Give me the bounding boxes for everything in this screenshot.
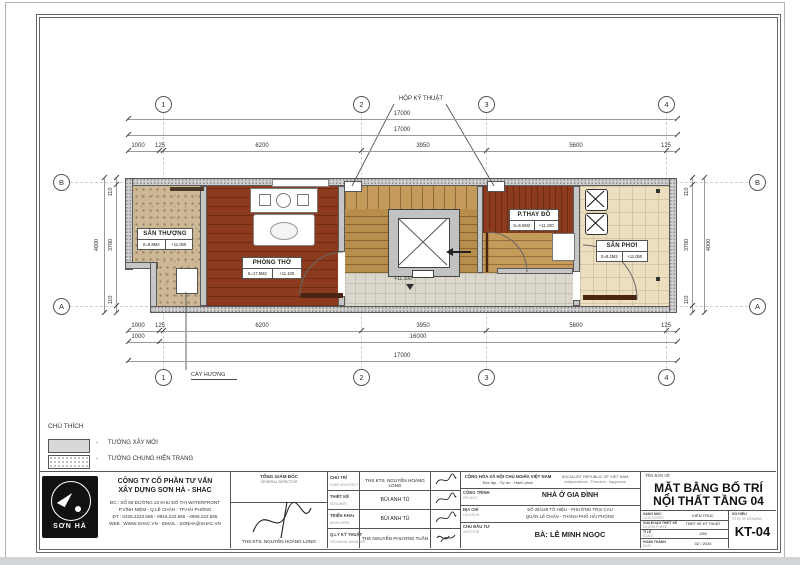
republic-en-1: SOCIALIST REPUBLIC OF VIET NAM bbox=[552, 474, 638, 479]
project-label: CÔNG TRÌNH bbox=[463, 490, 490, 495]
company-name-2: XÂY DỰNG SƠN HÀ - SHAC bbox=[100, 487, 230, 494]
candle-right-icon bbox=[297, 194, 309, 206]
grid-bubble-1-top: 1 bbox=[155, 96, 172, 113]
room-area: S=6.8M2 bbox=[138, 240, 165, 249]
project-value: NHÀ Ở GIA ĐÌNH bbox=[500, 492, 640, 499]
tb-hline bbox=[460, 488, 640, 489]
wall-santhuong-phongtho bbox=[200, 186, 207, 306]
tb-hline bbox=[327, 528, 460, 529]
incense-altar-box bbox=[176, 268, 198, 294]
dim-total: 17000 bbox=[352, 126, 452, 134]
dim-side-seg: 3780 bbox=[107, 230, 115, 260]
legend-swatch-existing-wall bbox=[48, 455, 90, 469]
incense-bowl-icon bbox=[276, 193, 291, 208]
meta-label-en: DESIGN PHASE bbox=[643, 525, 667, 529]
san-thuong-floor bbox=[133, 186, 203, 264]
desk-strip bbox=[0, 557, 800, 565]
director-signature bbox=[245, 498, 315, 540]
company-name-1: CÔNG TY CỔ PHẦN TƯ VẤN bbox=[100, 478, 230, 485]
elevator-car bbox=[398, 218, 450, 268]
elevator-door bbox=[412, 270, 434, 278]
role-label-en: DESIGNER bbox=[330, 502, 347, 506]
drawing-sheet: SÂN THƯỢNG S=6.8M2+11.050 PHÒNG THỜ S=17… bbox=[0, 0, 800, 565]
dim-seg: 16000 bbox=[368, 333, 468, 341]
drawing-title-2: NỘI THẤT TẦNG 04 bbox=[641, 495, 776, 508]
dim-line bbox=[128, 342, 677, 343]
wall-bottom bbox=[150, 306, 677, 313]
meta-value: 1/50 bbox=[680, 531, 726, 536]
logo-dot-icon bbox=[75, 506, 81, 512]
role-label: TRIỂN KHAI bbox=[330, 513, 354, 518]
meta-label-en: SCALE bbox=[643, 534, 653, 538]
role-name: THS.KTS. NGUYỄN HOÀNG LONG bbox=[360, 478, 430, 488]
grid-bubble-2-bottom: 2 bbox=[353, 369, 370, 386]
room-area: S=8.2M2 bbox=[597, 252, 622, 261]
location-label-en: LOCATION bbox=[463, 513, 479, 517]
altar-table bbox=[250, 188, 318, 213]
dim-line bbox=[128, 331, 677, 332]
tb-hline bbox=[327, 509, 460, 510]
tb-hline bbox=[640, 529, 728, 530]
role-label-en: CHIEF ARCHITECT bbox=[330, 483, 359, 487]
tb-hline bbox=[327, 490, 460, 491]
corridor-floor bbox=[345, 273, 573, 306]
candle-left-icon bbox=[259, 194, 271, 206]
legend-separator: - bbox=[96, 456, 98, 462]
corridor-level: +11.100 bbox=[394, 276, 412, 282]
stair-arrow-tail bbox=[453, 251, 471, 253]
company-address-2: P.VĨNH NIỆM - Q.LÊ CHÂN - TP.HẢI PHÒNG bbox=[100, 507, 230, 512]
role-signature-1 bbox=[433, 473, 458, 488]
dim-line bbox=[104, 178, 105, 313]
role-signature-3 bbox=[433, 511, 458, 526]
terrace-railing bbox=[170, 187, 204, 191]
room-name: P.THAY ĐỒ bbox=[510, 210, 558, 220]
role-label: CHỦ TRÌ bbox=[330, 475, 347, 480]
meta-label-en: CATEGORIES bbox=[643, 516, 664, 520]
company-address-1: ĐC : SỐ 55 ĐƯỜNG 22 KHU ĐÔ THỊ WATERFRON… bbox=[100, 500, 230, 505]
room-label-phong-tho: PHÒNG THỜ S=17.5M2+11.100 bbox=[242, 257, 302, 279]
meta-value: 02 / 2024 bbox=[680, 541, 726, 546]
legend-title: CHÚ THÍCH bbox=[48, 423, 84, 430]
wall-stair-pthaydo bbox=[477, 186, 483, 273]
director-name: THS.KTS. NGUYỄN HOÀNG LONG bbox=[231, 539, 327, 544]
company-web: WEB : WWW.SHAC.VN - EMAIL : SONHA@SHAC.V… bbox=[100, 521, 230, 526]
top-wall-window bbox=[272, 179, 329, 187]
grid-bubble-4-top: 4 bbox=[658, 96, 675, 113]
room-label-san-thuong: SÂN THƯỢNG S=6.8M2+11.050 bbox=[137, 228, 193, 250]
investor-value: BÀ: LÊ MINH NGỌC bbox=[500, 530, 640, 539]
director-title-vn: TỔNG GIÁM ĐỐC bbox=[231, 474, 327, 479]
dim-seg: 3950 bbox=[373, 142, 473, 150]
location-line-2: QUẬN LÊ CHÂN - THÀNH PHỐ HẢI PHÒNG bbox=[500, 514, 640, 519]
dim-seg: 3950 bbox=[373, 322, 473, 330]
role-name: BÙI ANH TÚ bbox=[360, 497, 430, 503]
role-name: BÙI ANH TÚ bbox=[360, 516, 430, 522]
dim-side-total: 4000 bbox=[93, 230, 101, 260]
titleblock-top-border bbox=[39, 471, 776, 472]
project-label-en: PROJECT bbox=[463, 496, 478, 500]
tb-hline bbox=[460, 505, 640, 506]
stair-upper-flight bbox=[345, 186, 477, 209]
grid-bubble-1-bottom: 1 bbox=[155, 369, 172, 386]
dim-side-seg: 3780 bbox=[683, 230, 691, 260]
grid-bubble-3-top: 3 bbox=[478, 96, 495, 113]
dim-total: 17000 bbox=[352, 110, 452, 118]
wall-pthaydo-corridor bbox=[497, 268, 573, 274]
wall-left bbox=[125, 178, 133, 270]
dim-line bbox=[692, 178, 693, 313]
legend-swatch-new-wall bbox=[48, 439, 90, 453]
room-label-san-phoi: SÂN PHƠI S=8.2M2+11.050 bbox=[596, 240, 648, 262]
meta-label-en: DATE bbox=[643, 544, 651, 548]
room-level: +11.050 bbox=[622, 252, 648, 261]
republic-vn-1: CỘNG HÒA XÃ HỘI CHỦ NGHĨA VIỆT NAM bbox=[464, 474, 552, 479]
role-signature-4 bbox=[433, 530, 458, 545]
grid-bubble-A-left: A bbox=[53, 298, 70, 315]
legend-item-new-wall: TƯỜNG XÂY MỚI bbox=[108, 440, 158, 446]
company-phone: ĐT : 0225.2222.555 - 0916.222.555 - 0906… bbox=[100, 514, 230, 519]
drain-1 bbox=[656, 189, 660, 193]
dim-total: 17000 bbox=[352, 352, 452, 360]
wall-right bbox=[669, 178, 677, 313]
room-area: S=17.5M2 bbox=[243, 269, 272, 278]
tech-box-1 bbox=[344, 181, 362, 192]
prayer-mat bbox=[253, 214, 315, 246]
meta-value: KIẾN TRÚC bbox=[680, 513, 726, 518]
drain-2 bbox=[656, 277, 660, 281]
room-level: +11.050 bbox=[165, 240, 193, 249]
tb-hline bbox=[640, 538, 728, 539]
dim-side-total: 4000 bbox=[705, 230, 713, 260]
grid-bubble-B-right: B bbox=[749, 174, 766, 191]
callout-tech-box: HỘP KỸ THUẬT bbox=[390, 95, 452, 103]
location-label: ĐỊA CHỈ bbox=[463, 507, 478, 512]
dim-line bbox=[128, 361, 677, 362]
company-logo: SƠN HÀ bbox=[42, 476, 98, 538]
grid-bubble-2-top: 2 bbox=[353, 96, 370, 113]
tech-box-2 bbox=[487, 181, 505, 192]
dim-line bbox=[128, 135, 677, 136]
republic-en-2: Independence - Freedom - happiness bbox=[552, 480, 638, 484]
vent-shaft-1 bbox=[585, 189, 608, 211]
wall-phongtho-stair-upper bbox=[338, 186, 345, 252]
legend-separator: - bbox=[96, 440, 98, 446]
location-line-1: SỐ 26/125 TÔ HIỆU - PHƯỜNG TRẠI CAU bbox=[500, 507, 640, 512]
callout-incense: CÂY HƯƠNG bbox=[191, 371, 237, 380]
stair-arrow-icon bbox=[446, 248, 453, 256]
role-label: Q.LÝ KỸ THUẬT bbox=[330, 532, 362, 537]
wall-top bbox=[125, 178, 677, 186]
room-name: PHÒNG THỜ bbox=[243, 258, 301, 268]
stair-left-flight bbox=[345, 209, 388, 273]
tb-vline bbox=[460, 471, 461, 548]
grid-bubble-A-right: A bbox=[749, 298, 766, 315]
room-area: S=6.0M2 bbox=[510, 221, 534, 230]
grid-bubble-B-left: B bbox=[53, 174, 70, 191]
stair-right-flight bbox=[458, 209, 477, 273]
wall-sanphoi-west-stub bbox=[573, 300, 580, 306]
dim-line bbox=[116, 178, 117, 313]
room-name: SÂN THƯỢNG bbox=[138, 229, 192, 239]
vent-shaft-2 bbox=[585, 213, 608, 235]
room-name: SÂN PHƠI bbox=[597, 241, 647, 251]
dim-line bbox=[128, 119, 677, 120]
role-label-en: DEVELOPED bbox=[330, 521, 350, 525]
republic-vn-2: Độc lập - Tự do - Hạnh phúc bbox=[464, 480, 552, 485]
logo-text: SƠN HÀ bbox=[42, 523, 98, 530]
sheet-number: KT-04 bbox=[729, 524, 776, 539]
wall-phongtho-stair-stub bbox=[338, 296, 345, 306]
cabinet bbox=[552, 233, 575, 261]
role-signature-2 bbox=[433, 492, 458, 507]
room-level: +11.100 bbox=[534, 221, 559, 230]
sheet-number-label-en: TITLE OF DRAWING bbox=[732, 517, 762, 521]
tb-hline bbox=[640, 510, 776, 511]
legend-item-existing-wall: TƯỜNG CHUNG HIỆN TRẠNG bbox=[108, 456, 193, 462]
meta-value: THIẾT KẾ KỸ THUẬT bbox=[680, 522, 726, 526]
drawing-name-label: TÊN BẢN VẼ bbox=[645, 473, 670, 478]
room-label-p-thay-do: P.THAY ĐỒ S=6.0M2+11.100 bbox=[509, 209, 559, 231]
dim-seg: 5600 bbox=[526, 322, 626, 330]
investor-label-en: INVESTOR bbox=[463, 530, 479, 534]
role-name: THS NGUYỄN PHƯƠNG TUẤN bbox=[360, 536, 430, 541]
room-level: +11.100 bbox=[272, 269, 302, 278]
dim-seg: 5600 bbox=[526, 142, 626, 150]
grid-bubble-4-bottom: 4 bbox=[658, 369, 675, 386]
grid-bubble-3-bottom: 3 bbox=[478, 369, 495, 386]
tb-hline bbox=[460, 522, 640, 523]
prayer-cushion bbox=[270, 222, 298, 240]
dim-seg: 6200 bbox=[212, 142, 312, 150]
dim-seg: 6200 bbox=[212, 322, 312, 330]
director-title-en: GENERAL DIRECTOR bbox=[231, 480, 327, 484]
investor-label: CHỦ ĐẦU TƯ bbox=[463, 524, 490, 529]
role-label: THIẾT KẾ bbox=[330, 494, 349, 499]
dim-line bbox=[128, 151, 677, 152]
